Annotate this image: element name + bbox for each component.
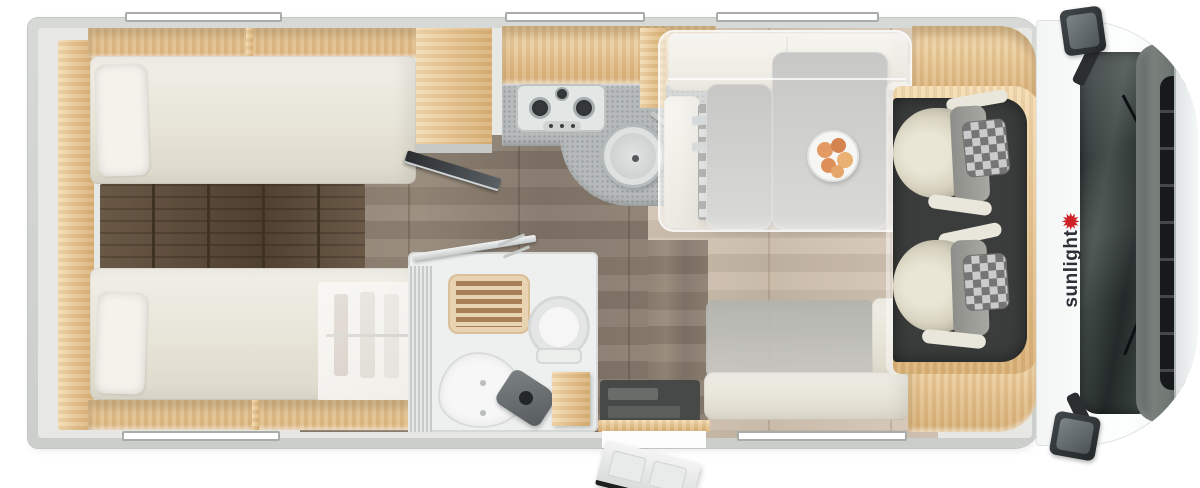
round-sink	[601, 124, 665, 188]
sunlight-logo: sunlight✹	[1059, 185, 1085, 335]
drop-down-bed-overlay	[658, 30, 912, 232]
hob-knob	[549, 124, 553, 128]
window-bottom-rear	[122, 431, 280, 441]
pillow-bottom-bed	[94, 291, 148, 395]
gas-hob	[516, 84, 606, 132]
window-bottom-dinette	[737, 431, 907, 441]
mixer-hole	[516, 388, 535, 407]
entry-step	[608, 406, 680, 418]
side-sofa-backrest	[704, 372, 910, 420]
shower-tray	[448, 274, 530, 334]
side-mirror-bottom	[1049, 410, 1102, 461]
sink-drain	[632, 155, 639, 162]
window-top-kitchen	[505, 12, 645, 22]
fruit-plate	[807, 130, 859, 182]
fruit	[831, 165, 844, 178]
front-bumper	[1174, 24, 1198, 442]
bed-foot-cabinet	[416, 28, 492, 146]
side-mirror-top	[1059, 5, 1107, 56]
step-divider	[207, 184, 210, 270]
sun-icon: ✹	[1061, 212, 1083, 229]
basin-drain	[480, 380, 486, 386]
vanity-cabinet	[552, 372, 590, 426]
captain-seat-front	[890, 92, 1030, 222]
hob-knob	[571, 124, 575, 128]
step-divider	[317, 184, 320, 270]
entry-step	[608, 388, 658, 400]
toilet-seat-back	[536, 348, 582, 364]
bed-steps	[100, 184, 365, 270]
step-divider	[152, 184, 155, 270]
bathroom-sliding-wall	[408, 266, 432, 432]
shelf-divider	[252, 400, 259, 430]
door-molding	[648, 460, 687, 488]
bed-foot-cabinet-edge	[416, 144, 492, 153]
pillow-top-bed	[94, 63, 150, 177]
shelf-divider	[246, 28, 253, 58]
overhead-shelf-top	[88, 28, 422, 58]
seat-headrest-cushion	[962, 253, 1010, 312]
hob-burner-right	[573, 97, 595, 119]
drop-down-bed-edge	[668, 78, 906, 80]
step-divider	[262, 184, 265, 270]
side-sofa-seat	[706, 300, 874, 378]
hob-burner-small	[555, 87, 569, 101]
rear-wall-panel	[58, 40, 94, 430]
captain-seat-rear	[890, 226, 1030, 356]
sunlight-logo-text: sunlight	[1061, 230, 1082, 308]
basin-drain	[480, 410, 486, 416]
hob-knobs	[543, 121, 581, 131]
hob-knob	[560, 124, 564, 128]
mirror-glass	[1066, 12, 1100, 50]
window-top-dinette	[716, 12, 879, 22]
door-molding	[607, 450, 646, 483]
motorhome-floorplan: sunlight✹	[0, 0, 1200, 488]
fruit	[831, 138, 846, 153]
mirror-glass	[1055, 417, 1094, 454]
hob-burner-left	[529, 97, 551, 119]
shower-slats	[456, 281, 522, 327]
window-top-rear	[125, 12, 282, 22]
seat-headrest-cushion	[961, 118, 1011, 178]
overhead-shelf-bottom	[88, 400, 440, 430]
